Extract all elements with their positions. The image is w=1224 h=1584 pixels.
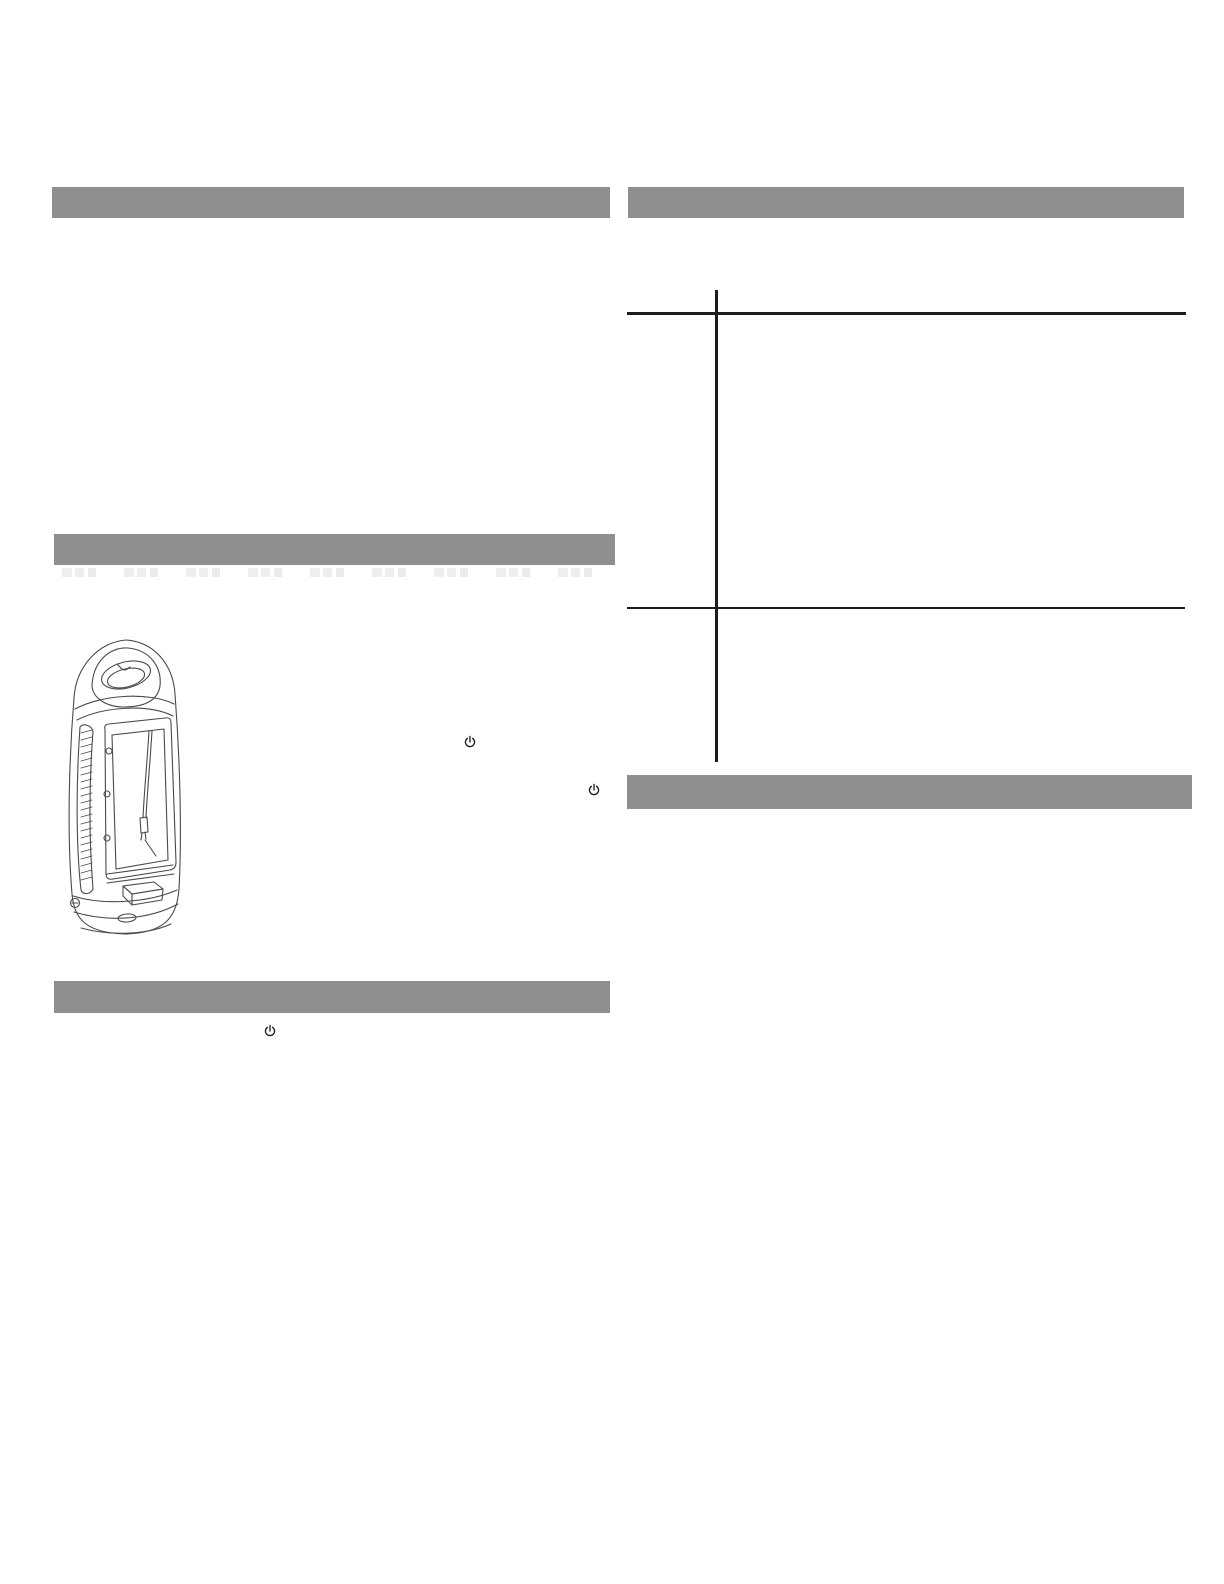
section-header-bar — [627, 775, 1192, 809]
power-icon — [463, 735, 477, 749]
table-column-divider — [715, 290, 718, 762]
power-icon — [263, 1024, 277, 1038]
lantern-figure — [55, 634, 191, 940]
section-header-bar — [54, 981, 610, 1013]
manual-page — [0, 0, 1224, 1584]
faint-text-artifact — [62, 568, 610, 577]
section-header-bar — [52, 187, 610, 218]
section-header-bar — [54, 534, 615, 565]
power-icon — [587, 783, 601, 797]
section-header-bar — [628, 187, 1184, 218]
table-row-divider-bottom — [627, 607, 1185, 609]
lantern-line-drawing-svg — [55, 634, 191, 940]
table-row-divider-top — [627, 312, 1186, 315]
